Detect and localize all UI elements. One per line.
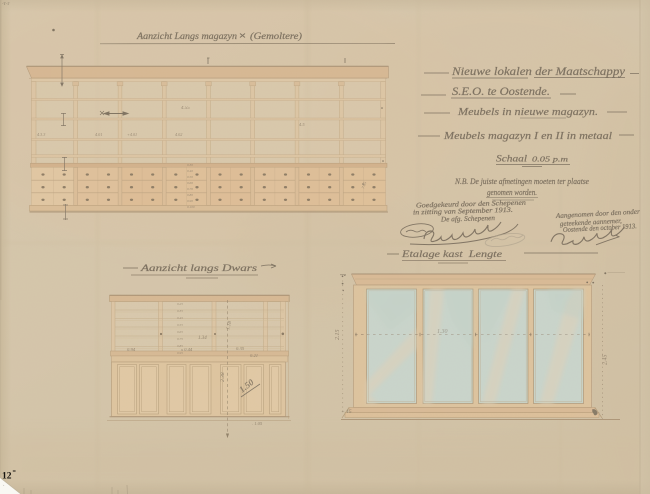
- svg-text:̇·: ̇·: [2, 484, 5, 489]
- svg-text:12: 12: [2, 472, 12, 482]
- svg-text:=: =: [13, 470, 17, 476]
